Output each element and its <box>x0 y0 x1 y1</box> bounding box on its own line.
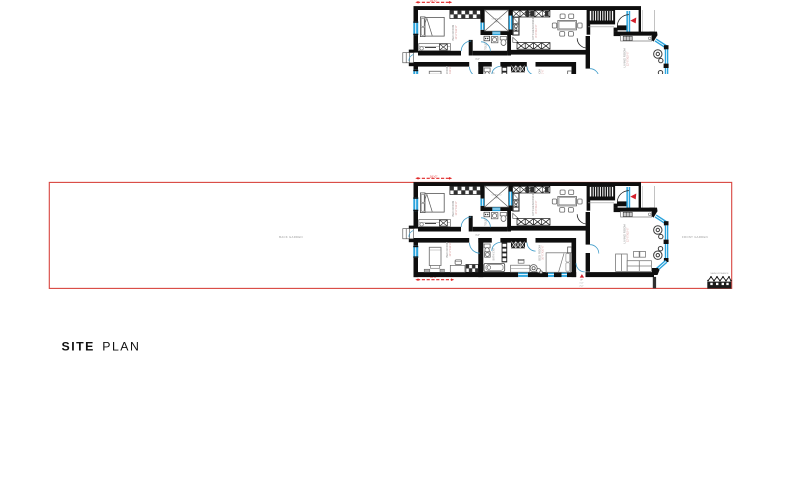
svg-text:BACK GARDEN: BACK GARDEN <box>279 235 303 239</box>
svg-text:SITE PLAN: SITE PLAN <box>62 340 141 354</box>
svg-text:MAIN ENTRANCE: MAIN ENTRANCE <box>710 272 729 275</box>
svg-text:FRONT GARDEN: FRONT GARDEN <box>682 235 708 239</box>
